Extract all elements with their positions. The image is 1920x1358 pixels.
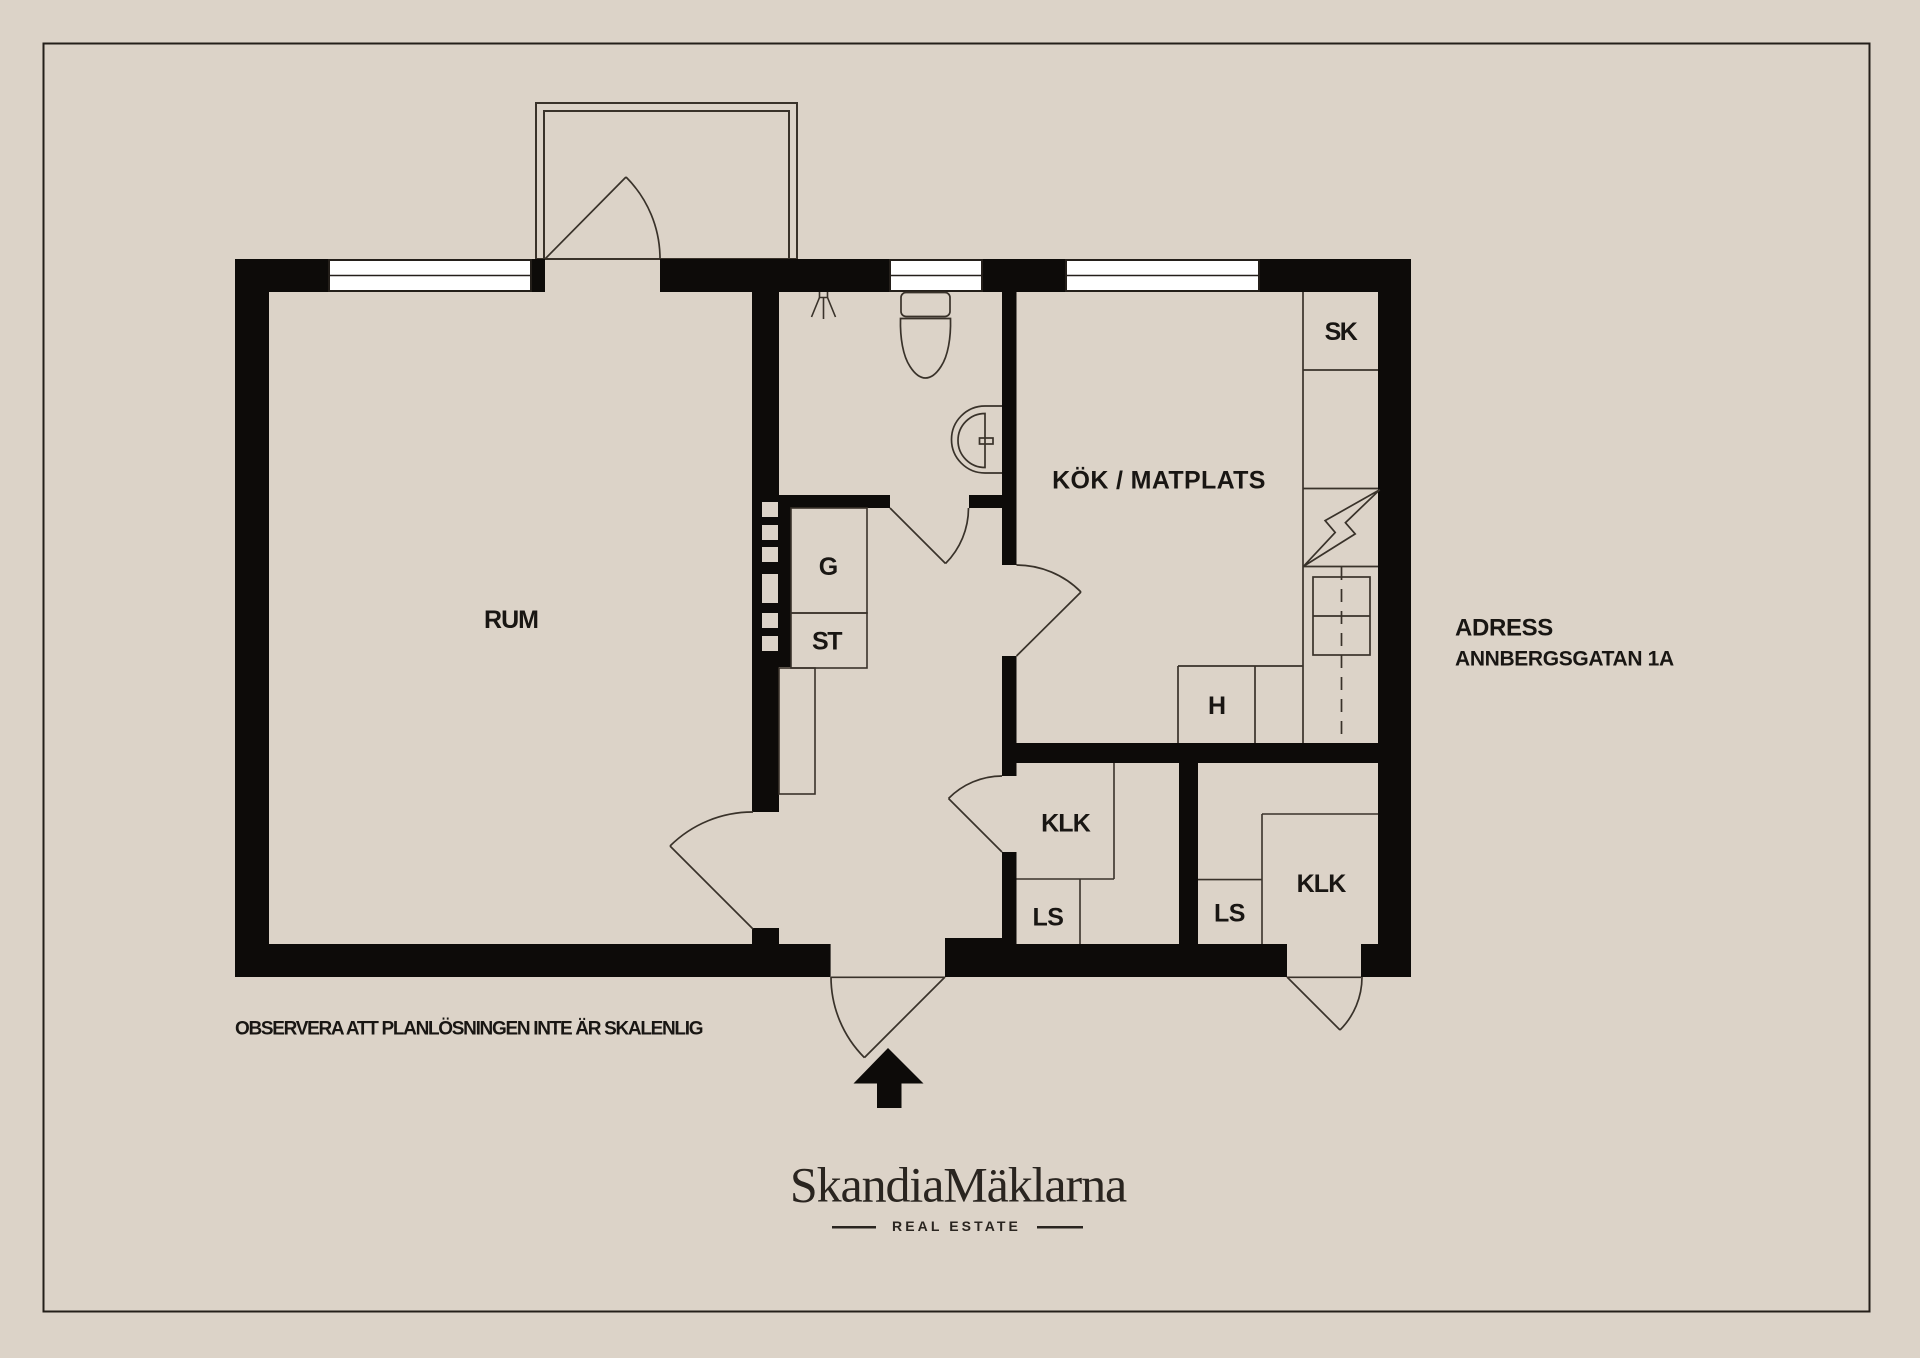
svg-text:H: H bbox=[1208, 692, 1226, 720]
svg-text:ST: ST bbox=[812, 628, 842, 656]
svg-text:LS: LS bbox=[1033, 904, 1064, 932]
svg-text:SK: SK bbox=[1325, 318, 1358, 346]
svg-text:KLK: KLK bbox=[1041, 810, 1091, 838]
svg-text:REAL ESTATE: REAL ESTATE bbox=[892, 1218, 1021, 1234]
svg-text:G: G bbox=[819, 553, 838, 581]
svg-text:LS: LS bbox=[1214, 900, 1245, 928]
svg-text:OBSERVERA ATT PLANLÖSNINGEN IN: OBSERVERA ATT PLANLÖSNINGEN INTE ÄR SKAL… bbox=[235, 1019, 703, 1040]
svg-text:ADRESS: ADRESS bbox=[1455, 615, 1553, 642]
svg-text:KÖK / MATPLATS: KÖK / MATPLATS bbox=[1052, 466, 1266, 495]
svg-text:RUM: RUM bbox=[484, 606, 538, 634]
svg-text:SkandiaMäklarna: SkandiaMäklarna bbox=[790, 1157, 1127, 1213]
svg-text:KLK: KLK bbox=[1297, 870, 1347, 898]
svg-text:ANNBERGSGATAN 1A: ANNBERGSGATAN 1A bbox=[1455, 648, 1674, 671]
